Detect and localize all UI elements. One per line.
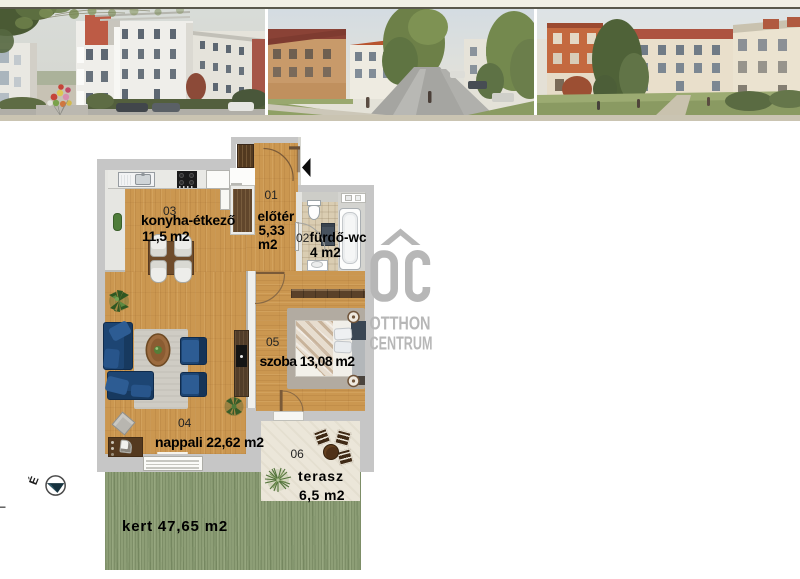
- svg-text:OTTHON: OTTHON: [370, 314, 431, 334]
- svg-text:É: É: [27, 475, 42, 487]
- svg-text:CENTRUM: CENTRUM: [370, 334, 433, 354]
